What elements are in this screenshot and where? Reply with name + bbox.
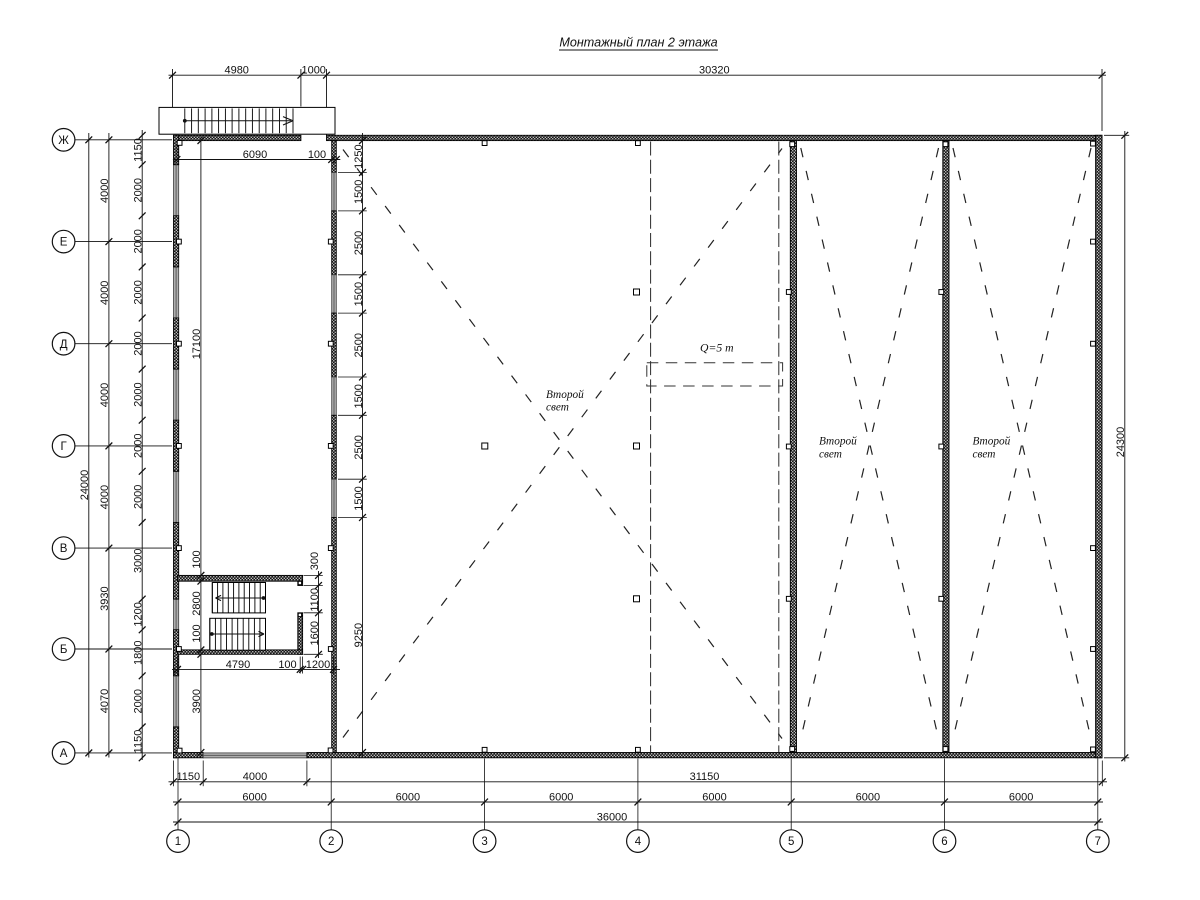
svg-text:2000: 2000 [133,382,145,406]
svg-text:6000: 6000 [702,791,726,803]
svg-text:4000: 4000 [99,281,111,305]
svg-text:1200: 1200 [133,602,145,626]
svg-text:1000: 1000 [301,65,325,77]
svg-text:6000: 6000 [856,791,880,803]
svg-text:4000: 4000 [99,178,111,202]
svg-text:1500: 1500 [353,282,365,306]
svg-text:Второй: Второй [546,389,584,401]
svg-text:6000: 6000 [1009,791,1033,803]
svg-text:2800: 2800 [191,591,203,615]
svg-text:2500: 2500 [353,435,365,459]
svg-text:2500: 2500 [353,231,365,255]
svg-text:2000: 2000 [133,229,145,253]
svg-text:Е: Е [60,237,68,249]
svg-text:2000: 2000 [133,689,145,713]
svg-text:4000: 4000 [243,771,267,783]
svg-text:свет: свет [973,449,996,461]
svg-text:1100: 1100 [309,588,321,612]
svg-text:4980: 4980 [224,65,248,77]
svg-text:6090: 6090 [243,149,267,161]
svg-text:6000: 6000 [242,791,266,803]
svg-text:Монтажный план 2 этажа: Монтажный план 2 этажа [559,36,717,50]
svg-text:3930: 3930 [99,586,111,610]
svg-text:1200: 1200 [306,659,330,671]
svg-text:3: 3 [481,836,487,848]
svg-text:24000: 24000 [79,470,91,501]
svg-text:1600: 1600 [309,621,321,645]
svg-text:Ж: Ж [58,135,69,147]
svg-text:А: А [60,748,68,760]
svg-text:свет: свет [819,449,842,461]
svg-text:36000: 36000 [597,811,628,823]
svg-text:Г: Г [60,441,67,453]
svg-text:17100: 17100 [191,329,203,360]
svg-text:Б: Б [60,644,68,656]
svg-text:1500: 1500 [353,384,365,408]
svg-text:4070: 4070 [99,689,111,713]
svg-text:1250: 1250 [353,144,365,168]
svg-text:4000: 4000 [99,383,111,407]
svg-text:2500: 2500 [353,333,365,357]
svg-text:100: 100 [191,550,203,568]
svg-text:6: 6 [941,836,947,848]
svg-text:2: 2 [328,836,334,848]
svg-text:2000: 2000 [133,178,145,202]
svg-text:1: 1 [175,836,181,848]
svg-text:30320: 30320 [699,65,730,77]
svg-text:1500: 1500 [353,486,365,510]
svg-text:В: В [60,543,68,555]
svg-text:Второй: Второй [819,436,857,448]
svg-text:7: 7 [1095,836,1101,848]
svg-text:300: 300 [309,552,321,570]
svg-text:31150: 31150 [690,771,720,783]
svg-text:100: 100 [278,659,296,671]
svg-text:3000: 3000 [133,548,145,572]
svg-text:Д: Д [60,339,68,351]
svg-text:Q=5 т: Q=5 т [700,342,734,355]
svg-text:5: 5 [788,836,794,848]
svg-text:4790: 4790 [226,659,250,671]
svg-text:100: 100 [308,149,326,161]
svg-text:4000: 4000 [99,485,111,509]
svg-text:1500: 1500 [353,180,365,204]
svg-text:2000: 2000 [133,280,145,304]
svg-text:2000: 2000 [133,485,145,509]
svg-text:свет: свет [546,401,569,413]
svg-text:4: 4 [635,836,642,848]
svg-text:3900: 3900 [191,689,203,713]
svg-text:Второй: Второй [973,436,1011,448]
svg-text:9250: 9250 [353,623,365,647]
svg-text:6000: 6000 [396,791,420,803]
svg-text:24300: 24300 [1115,427,1127,458]
svg-text:1800: 1800 [133,640,145,664]
svg-text:100: 100 [191,624,203,642]
svg-text:1150: 1150 [133,138,145,162]
svg-text:1150: 1150 [133,730,145,754]
svg-text:2000: 2000 [133,433,145,457]
svg-text:6000: 6000 [549,791,573,803]
svg-text:1150: 1150 [176,771,200,783]
svg-text:2000: 2000 [133,331,145,355]
